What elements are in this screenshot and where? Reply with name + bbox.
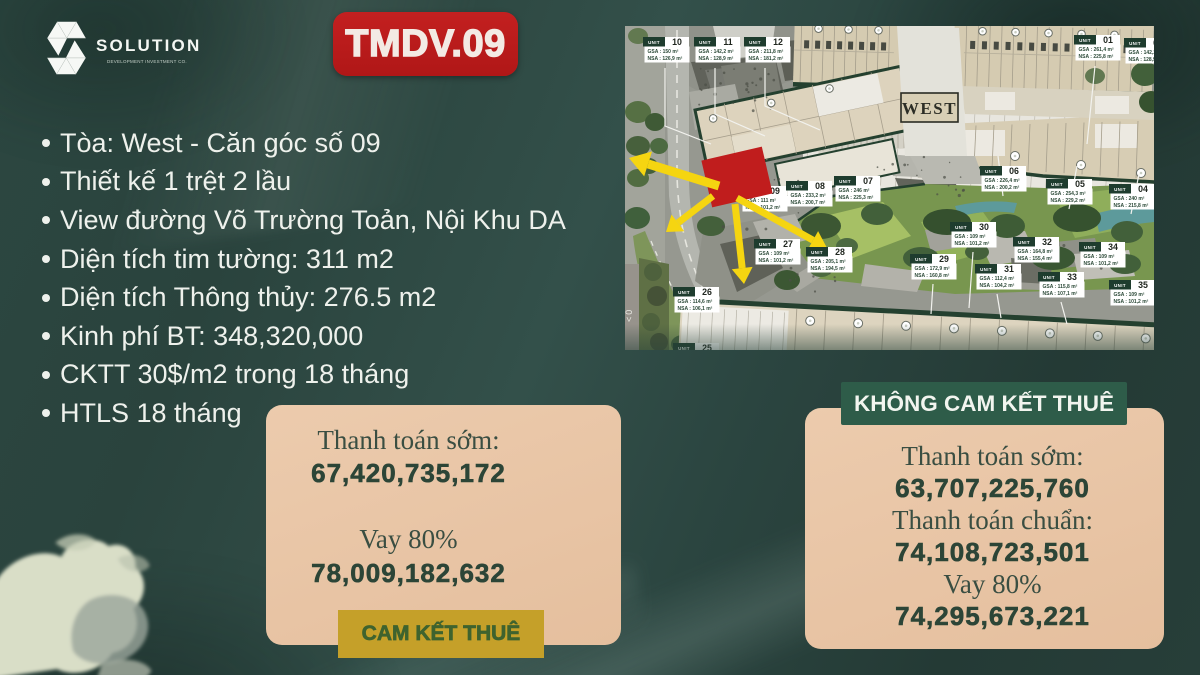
svg-text:NSA : 101,2 m²: NSA : 101,2 m² <box>759 258 794 264</box>
svg-text:UNIT: UNIT <box>915 257 927 262</box>
svg-text:29: 29 <box>939 254 949 264</box>
svg-text:11: 11 <box>723 37 732 47</box>
svg-text:NSA : 200,2 m²: NSA : 200,2 m² <box>985 185 1020 191</box>
svg-text:GSA : 246 m²: GSA : 246 m² <box>839 188 870 194</box>
svg-text:35: 35 <box>1138 280 1148 290</box>
svg-text:GSA : 240 m²: GSA : 240 m² <box>1114 196 1145 202</box>
svg-text:GSA : 205,1 m²: GSA : 205,1 m² <box>811 259 846 265</box>
svg-text:07: 07 <box>863 176 873 186</box>
svg-text:10: 10 <box>672 37 682 47</box>
svg-text:UNIT: UNIT <box>791 184 803 189</box>
svg-text:NSA : 101,2 m²: NSA : 101,2 m² <box>955 241 990 247</box>
svg-text:33: 33 <box>1067 272 1077 282</box>
svg-text:UNIT: UNIT <box>985 169 997 174</box>
svg-text:UNIT: UNIT <box>699 40 711 45</box>
svg-text:UNIT: UNIT <box>759 242 771 247</box>
svg-text:NSA : 229,2 m²: NSA : 229,2 m² <box>1051 198 1086 204</box>
svg-text:NSA : 126,9 m²: NSA : 126,9 m² <box>648 56 683 62</box>
svg-text:08: 08 <box>815 181 825 191</box>
svg-text:32: 32 <box>1042 237 1052 247</box>
svg-text:01: 01 <box>1103 35 1113 45</box>
svg-text:GSA : 109 m²: GSA : 109 m² <box>1084 254 1115 260</box>
svg-text:GSA : 109 m²: GSA : 109 m² <box>1114 292 1145 298</box>
svg-text:NSA : 155,4 m²: NSA : 155,4 m² <box>1018 256 1053 262</box>
svg-text:NSA : 225,8 m²: NSA : 225,8 m² <box>1079 54 1114 60</box>
svg-text:NSA : 107,1 m²: NSA : 107,1 m² <box>1043 291 1078 297</box>
svg-text:30: 30 <box>979 222 989 232</box>
svg-text:UNIT: UNIT <box>1018 240 1030 245</box>
svg-text:UNIT: UNIT <box>678 290 690 295</box>
svg-text:NSA : 106,1 m²: NSA : 106,1 m² <box>678 306 713 312</box>
svg-text:<0: <0 <box>625 308 634 322</box>
svg-text:GSA : 115,8 m²: GSA : 115,8 m² <box>1043 284 1078 290</box>
svg-text:UNIT: UNIT <box>980 267 992 272</box>
svg-text:02: 02 <box>1153 38 1154 48</box>
svg-text:GSA : 211,8 m²: GSA : 211,8 m² <box>749 49 784 55</box>
svg-text:UNIT: UNIT <box>1129 41 1141 46</box>
svg-text:NSA : 104,2 m²: NSA : 104,2 m² <box>980 283 1015 289</box>
svg-text:28: 28 <box>835 247 845 257</box>
svg-text:GSA : 164,8 m²: GSA : 164,8 m² <box>1018 249 1053 255</box>
svg-text:NSA : 128,9 m²: NSA : 128,9 m² <box>1129 57 1155 63</box>
svg-text:WEST: WEST <box>902 99 957 118</box>
svg-text:04: 04 <box>1138 184 1148 194</box>
svg-text:UNIT: UNIT <box>749 40 761 45</box>
svg-text:UNIT: UNIT <box>1114 283 1126 288</box>
svg-text:12: 12 <box>773 37 783 47</box>
svg-text:GSA : 226,4 m²: GSA : 226,4 m² <box>985 178 1020 184</box>
svg-text:GSA : 109 m²: GSA : 109 m² <box>759 251 790 257</box>
svg-text:GSA : 112,4 m²: GSA : 112,4 m² <box>980 276 1015 282</box>
svg-text:GSA : 254,3 m²: GSA : 254,3 m² <box>1051 191 1086 197</box>
svg-text:UNIT: UNIT <box>648 40 660 45</box>
svg-text:GSA : 150 m²: GSA : 150 m² <box>648 49 679 55</box>
svg-text:NSA : 101,2 m²: NSA : 101,2 m² <box>1084 261 1119 267</box>
svg-text:26: 26 <box>702 287 712 297</box>
svg-text:UNIT: UNIT <box>1079 38 1091 43</box>
svg-text:NSA : 215,8 m²: NSA : 215,8 m² <box>1114 203 1149 209</box>
svg-text:GSA : 142,2 m²: GSA : 142,2 m² <box>699 49 734 55</box>
svg-text:NSA : 101,2 m²: NSA : 101,2 m² <box>1114 299 1149 305</box>
svg-text:UNIT: UNIT <box>1043 275 1055 280</box>
svg-text:34: 34 <box>1108 242 1118 252</box>
svg-text:06: 06 <box>1009 166 1019 176</box>
svg-text:UNIT: UNIT <box>811 250 823 255</box>
svg-text:31: 31 <box>1004 264 1014 274</box>
svg-text:05: 05 <box>1075 179 1085 189</box>
svg-text:UNIT: UNIT <box>955 225 967 230</box>
svg-text:UNIT: UNIT <box>1051 182 1063 187</box>
svg-text:UNIT: UNIT <box>1114 187 1126 192</box>
svg-text:NSA : 200,7 m²: NSA : 200,7 m² <box>791 200 826 206</box>
svg-text:NSA : 160,8 m²: NSA : 160,8 m² <box>915 273 950 279</box>
svg-text:NSA : 225,3 m²: NSA : 225,3 m² <box>839 195 874 201</box>
svg-text:GSA : 172,9 m²: GSA : 172,9 m² <box>915 266 950 272</box>
svg-text:GSA : 233,2 m²: GSA : 233,2 m² <box>791 193 826 199</box>
svg-text:GSA : 142,2 m²: GSA : 142,2 m² <box>1129 50 1155 56</box>
svg-text:NSA : 181,2 m²: NSA : 181,2 m² <box>749 56 784 62</box>
svg-text:UNIT: UNIT <box>1084 245 1096 250</box>
svg-text:GSA : 261,4 m²: GSA : 261,4 m² <box>1079 47 1114 53</box>
svg-text:NSA : 194,5 m²: NSA : 194,5 m² <box>811 266 846 272</box>
svg-text:GSA : 114,6 m²: GSA : 114,6 m² <box>678 299 713 305</box>
svg-text:27: 27 <box>783 239 793 249</box>
svg-text:UNIT: UNIT <box>839 179 851 184</box>
svg-text:NSA : 128,9 m²: NSA : 128,9 m² <box>699 56 734 62</box>
svg-text:GSA : 109 m²: GSA : 109 m² <box>955 234 986 240</box>
